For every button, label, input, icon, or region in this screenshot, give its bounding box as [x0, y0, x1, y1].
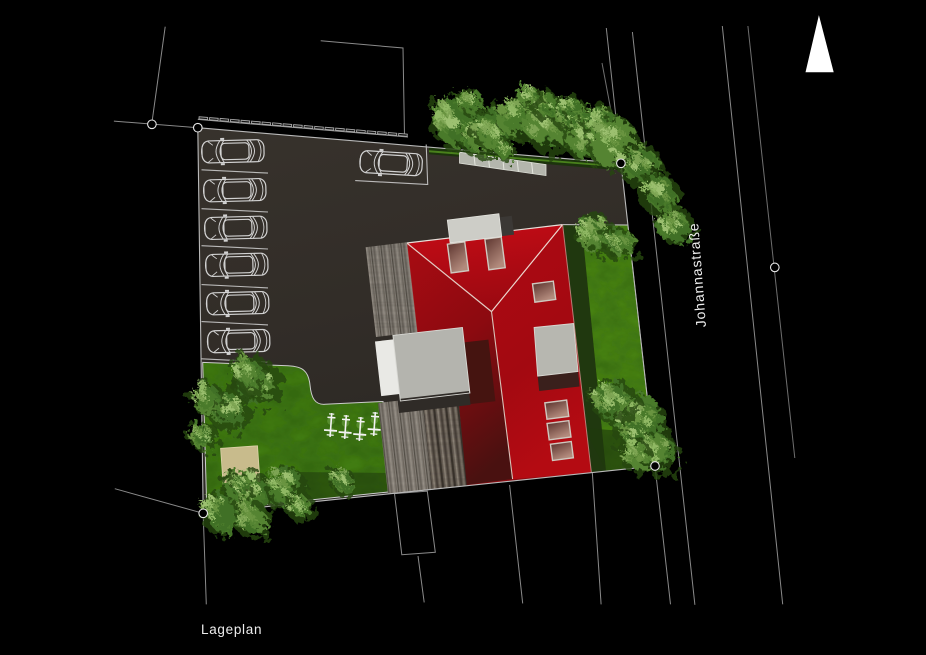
- svg-text:Lageplan: Lageplan: [201, 622, 262, 637]
